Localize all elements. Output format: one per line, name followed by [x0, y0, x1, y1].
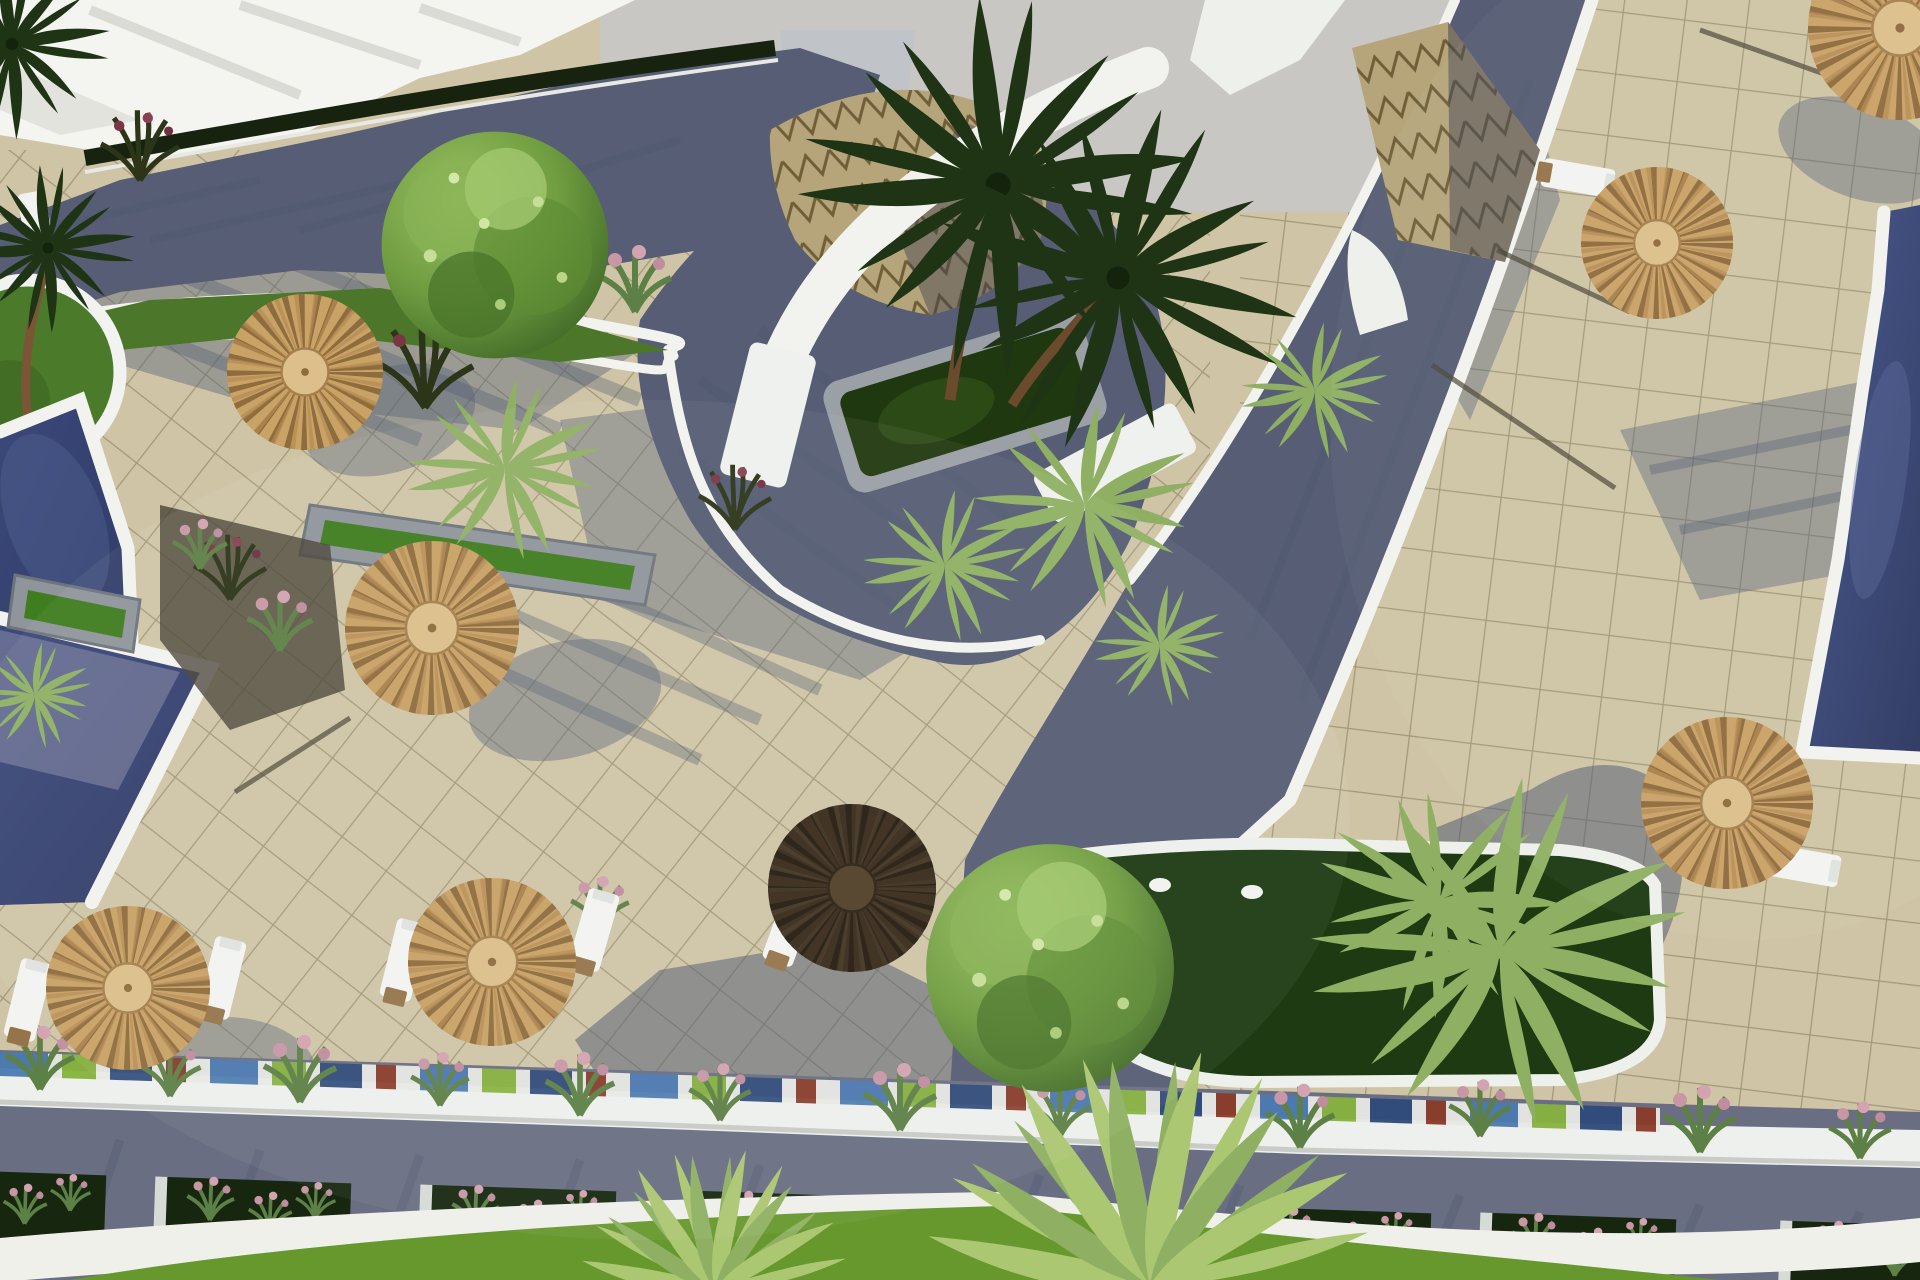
thatch-umbrella — [227, 294, 383, 450]
round-shade-tree — [382, 132, 609, 359]
resort-aerial-render — [0, 0, 1920, 1280]
render-canvas — [0, 0, 1920, 1280]
